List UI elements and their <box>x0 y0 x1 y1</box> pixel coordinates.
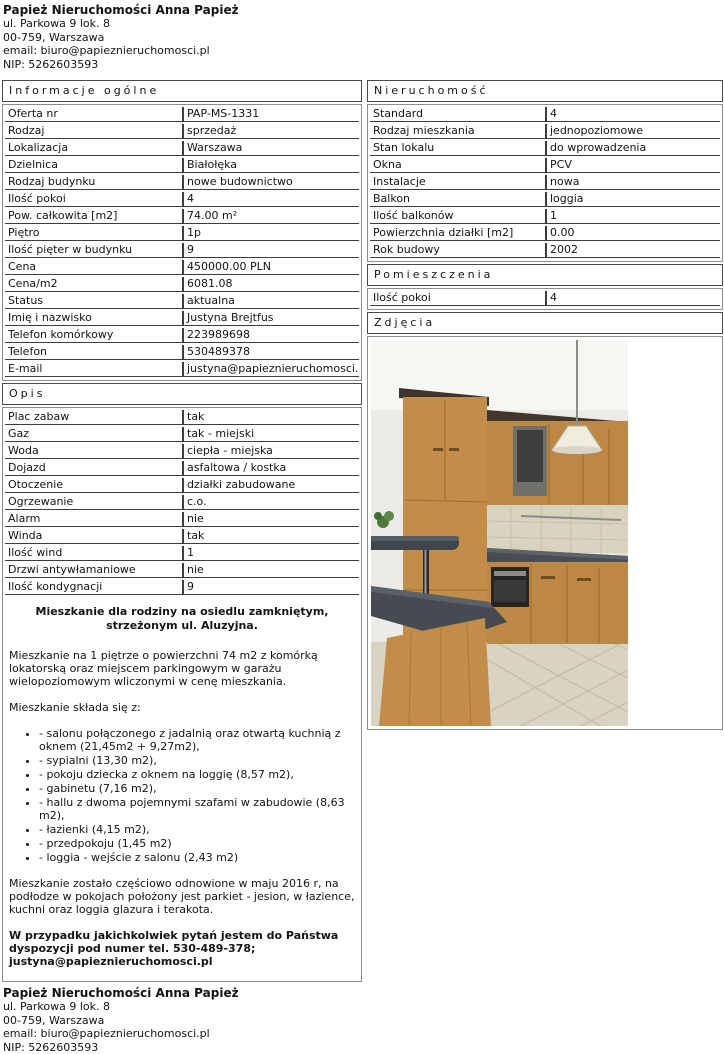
room-list: - salonu połączonego z jadalnią oraz otw… <box>9 727 355 864</box>
row-label: Ilość pokoi <box>370 291 545 305</box>
row-value: nowa <box>545 175 720 189</box>
table-row: Imię i nazwiskoJustyna Brejtfus <box>5 311 359 326</box>
section-title-nieruchomosc: Nieruchomość <box>367 80 723 102</box>
row-label: Winda <box>5 529 182 543</box>
row-label: Rok budowy <box>370 243 545 257</box>
row-value: c.o. <box>182 495 359 509</box>
table-row: Cena450000.00 PLN <box>5 260 359 275</box>
row-value: nie <box>182 563 359 577</box>
row-value: 9 <box>182 580 359 594</box>
footer-agency-city: 00-759, Warszawa <box>3 1014 362 1028</box>
agency-footer: Papież Nieruchomości Anna Papież ul. Par… <box>3 985 362 1054</box>
description-list-intro: Mieszkanie składa się z: <box>9 701 355 714</box>
row-value: 1 <box>545 209 720 223</box>
photo-container <box>367 336 723 730</box>
table-row: Piętro1p <box>5 226 359 241</box>
row-label: Cena <box>5 260 182 274</box>
description-renovation: Mieszkanie zostało częściowo odnowione w… <box>9 877 355 916</box>
row-label: Rodzaj mieszkania <box>370 124 545 138</box>
table-row: Ilość pokoi4 <box>5 192 359 207</box>
footer-agency-email: email: biuro@papieznieruchomosci.pl <box>3 1027 362 1041</box>
row-label: Imię i nazwisko <box>5 311 182 325</box>
row-value: nie <box>182 512 359 526</box>
table-row: Cena/m26081.08 <box>5 277 359 292</box>
table-row: E-mailjustyna@papieznieruchomosci.pl <box>5 362 359 377</box>
row-value: 1 <box>182 546 359 560</box>
row-value: 530489378 <box>182 345 359 359</box>
table-row: Wodaciepła - miejska <box>5 444 359 459</box>
nieruchomosc-table: Standard4 Rodzaj mieszkaniajednopoziomow… <box>367 104 723 262</box>
table-row: Rok budowy2002 <box>370 243 720 258</box>
row-value: 450000.00 PLN <box>182 260 359 274</box>
table-row: Telefon530489378 <box>5 345 359 360</box>
row-label: Drzwi antywłamaniowe <box>5 563 182 577</box>
table-row: Ilość pokoi4 <box>370 291 720 306</box>
row-label: Rodzaj budynku <box>5 175 182 189</box>
room-list-item: - hallu z dwoma pojemnymi szafami w zabu… <box>39 796 355 822</box>
row-label: Instalacje <box>370 175 545 189</box>
room-list-item: - pokoju dziecka z oknem na loggię (8,57… <box>39 768 355 781</box>
row-label: Ilość kondygnacji <box>5 580 182 594</box>
row-value: sprzedaż <box>182 124 359 138</box>
left-column: Informacje ogólne Oferta nrPAP-MS-1331 R… <box>2 80 362 1054</box>
room-list-item: - przedpokoju (1,45 m2) <box>39 837 355 850</box>
row-label: Dojazd <box>5 461 182 475</box>
row-label: Okna <box>370 158 545 172</box>
row-value: Białołęka <box>182 158 359 172</box>
row-value: Warszawa <box>182 141 359 155</box>
footer-agency-name: Papież Nieruchomości Anna Papież <box>3 986 362 1000</box>
agency-city: 00-759, Warszawa <box>3 31 723 45</box>
table-row: Gaztak - miejski <box>5 427 359 442</box>
row-value: loggia <box>545 192 720 206</box>
row-value: 0.00 <box>545 226 720 240</box>
row-value: tak <box>182 529 359 543</box>
row-value: 74.00 m² <box>182 209 359 223</box>
table-row: Balkonloggia <box>370 192 720 207</box>
row-label: Otoczenie <box>5 478 182 492</box>
row-label: Ilość wind <box>5 546 182 560</box>
table-row: Stan lokaludo wprowadzenia <box>370 141 720 156</box>
row-value: Justyna Brejtfus <box>182 311 359 325</box>
room-list-item: - gabinetu (7,16 m2), <box>39 782 355 795</box>
table-row: Rodzajsprzedaż <box>5 124 359 139</box>
table-row: Windatak <box>5 529 359 544</box>
row-value: justyna@papieznieruchomosci.pl <box>182 362 359 376</box>
row-label: E-mail <box>5 362 182 376</box>
section-title-opis: Opis <box>2 383 362 405</box>
description-heading: Mieszkanie dla rodziny na osiedlu zamkni… <box>19 605 345 633</box>
row-label: Status <box>5 294 182 308</box>
row-value: PCV <box>545 158 720 172</box>
row-value: 223989698 <box>182 328 359 342</box>
section-opis: Opis Plac zabawtak Gaztak - miejski Woda… <box>2 383 362 982</box>
agency-address: ul. Parkowa 9 lok. 8 <box>3 17 723 31</box>
description-text: Mieszkanie dla rodziny na osiedlu zamkni… <box>4 597 360 980</box>
row-label: Piętro <box>5 226 182 240</box>
row-value: PAP-MS-1331 <box>182 107 359 121</box>
table-row: Drzwi antywłamaniowenie <box>5 563 359 578</box>
section-title-zdjecia: Zdjęcia <box>367 312 723 334</box>
row-value: 6081.08 <box>182 277 359 291</box>
row-value: asfaltowa / kostka <box>182 461 359 475</box>
table-row: Alarmnie <box>5 512 359 527</box>
room-list-item: - salonu połączonego z jadalnią oraz otw… <box>39 727 355 753</box>
table-row: Ilość kondygnacji9 <box>5 580 359 595</box>
agency-email: email: biuro@papieznieruchomosci.pl <box>3 44 723 58</box>
section-pomieszczenia: Pomieszczenia Ilość pokoi4 <box>367 264 723 310</box>
row-label: Lokalizacja <box>5 141 182 155</box>
room-list-item: - loggia - wejście z salonu (2,43 m2) <box>39 851 355 864</box>
table-row: Plac zabawtak <box>5 410 359 425</box>
row-value: 1p <box>182 226 359 240</box>
section-nieruchomosc: Nieruchomość Standard4 Rodzaj mieszkania… <box>367 80 723 262</box>
section-title-informacje-ogolne: Informacje ogólne <box>2 80 362 102</box>
row-label: Telefon <box>5 345 182 359</box>
table-row: Ilość balkonów1 <box>370 209 720 224</box>
pomieszczenia-table: Ilość pokoi4 <box>367 288 723 310</box>
row-label: Ilość pięter w budynku <box>5 243 182 257</box>
row-label: Balkon <box>370 192 545 206</box>
description-contact: W przypadku jakichkolwiek pytań jestem d… <box>9 929 355 968</box>
row-value: nowe budownictwo <box>182 175 359 189</box>
row-value: do wprowadzenia <box>545 141 720 155</box>
row-label: Woda <box>5 444 182 458</box>
row-value: ciepła - miejska <box>182 444 359 458</box>
informacje-table: Oferta nrPAP-MS-1331 Rodzajsprzedaż Loka… <box>2 104 362 381</box>
agency-name: Papież Nieruchomości Anna Papież <box>3 3 723 17</box>
row-label: Ilość pokoi <box>5 192 182 206</box>
row-label: Powierzchnia działki [m2] <box>370 226 545 240</box>
row-label: Standard <box>370 107 545 121</box>
row-label: Alarm <box>5 512 182 526</box>
table-row: Rodzaj budynkunowe budownictwo <box>5 175 359 190</box>
table-row: Otoczeniedziałki zabudowane <box>5 478 359 493</box>
table-row: LokalizacjaWarszawa <box>5 141 359 156</box>
table-row: Statusaktualna <box>5 294 359 309</box>
row-label: Stan lokalu <box>370 141 545 155</box>
table-row: Ilość wind1 <box>5 546 359 561</box>
two-column-layout: Informacje ogólne Oferta nrPAP-MS-1331 R… <box>2 80 723 1054</box>
row-value: 4 <box>545 291 720 305</box>
room-list-item: - sypialni (13,30 m2), <box>39 754 355 767</box>
footer-agency-nip: NIP: 5262603593 <box>3 1041 362 1054</box>
table-row: Powierzchnia działki [m2]0.00 <box>370 226 720 241</box>
table-row: Instalacjenowa <box>370 175 720 190</box>
row-label: Rodzaj <box>5 124 182 138</box>
table-row: Pow. całkowita [m2]74.00 m² <box>5 209 359 224</box>
table-row: OknaPCV <box>370 158 720 173</box>
kitchen-photo <box>371 340 628 726</box>
table-row: Telefon komórkowy223989698 <box>5 328 359 343</box>
table-row: Oferta nrPAP-MS-1331 <box>5 107 359 122</box>
row-label: Cena/m2 <box>5 277 182 291</box>
row-value: 2002 <box>545 243 720 257</box>
agency-header: Papież Nieruchomości Anna Papież ul. Par… <box>3 3 723 71</box>
row-label: Ilość balkonów <box>370 209 545 223</box>
row-label: Oferta nr <box>5 107 182 121</box>
section-informacje-ogolne: Informacje ogólne Oferta nrPAP-MS-1331 R… <box>2 80 362 381</box>
table-row: Dojazdasfaltowa / kostka <box>5 461 359 476</box>
offer-document: Papież Nieruchomości Anna Papież ul. Par… <box>0 0 724 1054</box>
room-list-item: - łazienki (4,15 m2), <box>39 823 355 836</box>
row-label: Gaz <box>5 427 182 441</box>
row-label: Plac zabaw <box>5 410 182 424</box>
row-value: tak - miejski <box>182 427 359 441</box>
opis-body: Plac zabawtak Gaztak - miejski Wodaciepł… <box>2 407 362 982</box>
section-zdjecia: Zdjęcia <box>367 312 723 730</box>
table-row: DzielnicaBiałołęka <box>5 158 359 173</box>
row-label: Pow. całkowita [m2] <box>5 209 182 223</box>
table-row: Ogrzewaniec.o. <box>5 495 359 510</box>
row-label: Telefon komórkowy <box>5 328 182 342</box>
footer-agency-address: ul. Parkowa 9 lok. 8 <box>3 1000 362 1014</box>
table-row: Ilość pięter w budynku9 <box>5 243 359 258</box>
right-column: Nieruchomość Standard4 Rodzaj mieszkania… <box>367 80 723 732</box>
row-value: tak <box>182 410 359 424</box>
section-title-pomieszczenia: Pomieszczenia <box>367 264 723 286</box>
row-value: jednopoziomowe <box>545 124 720 138</box>
row-value: aktualna <box>182 294 359 308</box>
table-row: Rodzaj mieszkaniajednopoziomowe <box>370 124 720 139</box>
row-label: Dzielnica <box>5 158 182 172</box>
row-value: 9 <box>182 243 359 257</box>
row-value: 4 <box>182 192 359 206</box>
row-label: Ogrzewanie <box>5 495 182 509</box>
row-value: działki zabudowane <box>182 478 359 492</box>
description-intro: Mieszkanie na 1 piętrze o powierzchni 74… <box>9 649 355 688</box>
agency-nip: NIP: 5262603593 <box>3 58 723 72</box>
table-row: Standard4 <box>370 107 720 122</box>
row-value: 4 <box>545 107 720 121</box>
